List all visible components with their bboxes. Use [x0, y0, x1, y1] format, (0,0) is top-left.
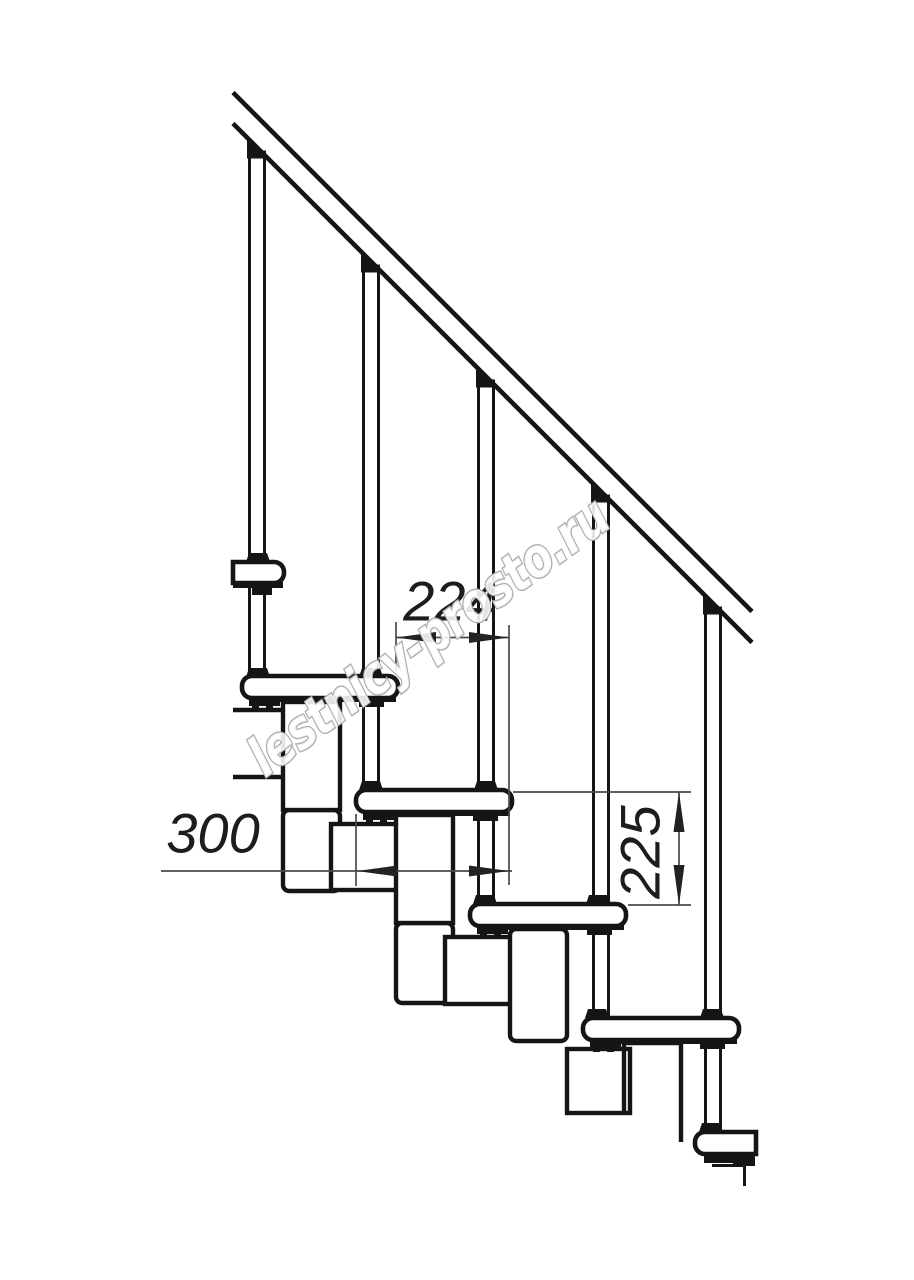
staircase-technical-drawing: 224300225lestnicy-prosto.ru — [0, 0, 914, 1280]
collar — [246, 553, 270, 562]
dimension-arrowhead — [674, 792, 685, 832]
baluster-1 — [250, 152, 265, 677]
technical-drawing-page: 224300225lestnicy-prosto.ru — [0, 0, 914, 1280]
baluster-5 — [706, 608, 721, 1132]
collar — [474, 781, 498, 790]
baluster-4 — [594, 496, 609, 1018]
module-connector-3 — [445, 937, 516, 1004]
module-connector-4 — [567, 1049, 630, 1113]
dimension-arrowhead — [674, 865, 685, 905]
upper-tread-fragment — [233, 562, 284, 583]
collar — [585, 1009, 609, 1018]
collar — [473, 895, 497, 904]
collar — [700, 1009, 724, 1018]
baluster-rail-cap-4 — [591, 480, 611, 503]
lower-tread-fragment — [695, 1132, 756, 1154]
watermark-text: lestnicy-prosto.ru — [235, 485, 620, 789]
baluster-rail-cap-1 — [247, 136, 267, 159]
watermark: lestnicy-prosto.ru — [235, 485, 620, 789]
module-upper-box-2 — [396, 815, 453, 923]
dimension-value-tread-depth: 300 — [166, 802, 259, 865]
tread-2 — [356, 790, 512, 812]
collar — [359, 781, 383, 790]
dimension-value-riser-height: 225 — [609, 804, 672, 899]
collar — [699, 1123, 723, 1132]
module-upper-box-3 — [510, 929, 567, 1041]
module-connector-2 — [331, 824, 402, 890]
baluster-3 — [479, 381, 494, 904]
module-upper-box-4 — [624, 1043, 681, 1142]
baluster-rail-cap-2 — [361, 250, 381, 273]
baluster-rail-cap-3 — [476, 365, 496, 388]
baluster-rail-cap-5 — [703, 592, 723, 615]
tread-4 — [583, 1018, 739, 1040]
tread-3 — [470, 904, 626, 926]
collar — [246, 668, 270, 677]
collar — [586, 895, 610, 904]
